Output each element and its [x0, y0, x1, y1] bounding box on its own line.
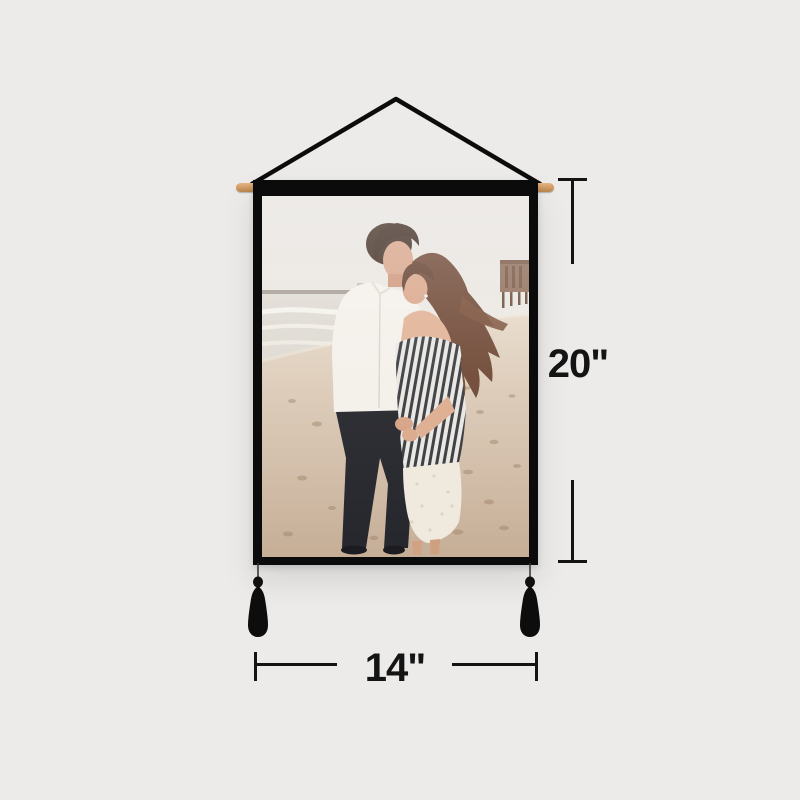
width-dimension-cap-right: [535, 652, 538, 681]
width-dimension-line-right: [452, 663, 537, 666]
tassel-left: [243, 563, 273, 643]
poster-frame: [253, 180, 538, 565]
width-dimension-label: 14": [355, 648, 435, 688]
height-dimension-label: 20": [538, 344, 618, 384]
product-image-canvas: 20" 14": [0, 0, 800, 800]
width-dimension-line-left: [255, 663, 337, 666]
height-dimension-line-upper: [571, 179, 574, 264]
width-dimension-cap-left: [254, 652, 257, 681]
height-dimension-cap-bottom: [558, 560, 587, 563]
beach-photo: [262, 196, 529, 557]
tassel-right: [515, 563, 545, 643]
height-dimension-line-lower: [571, 480, 574, 562]
